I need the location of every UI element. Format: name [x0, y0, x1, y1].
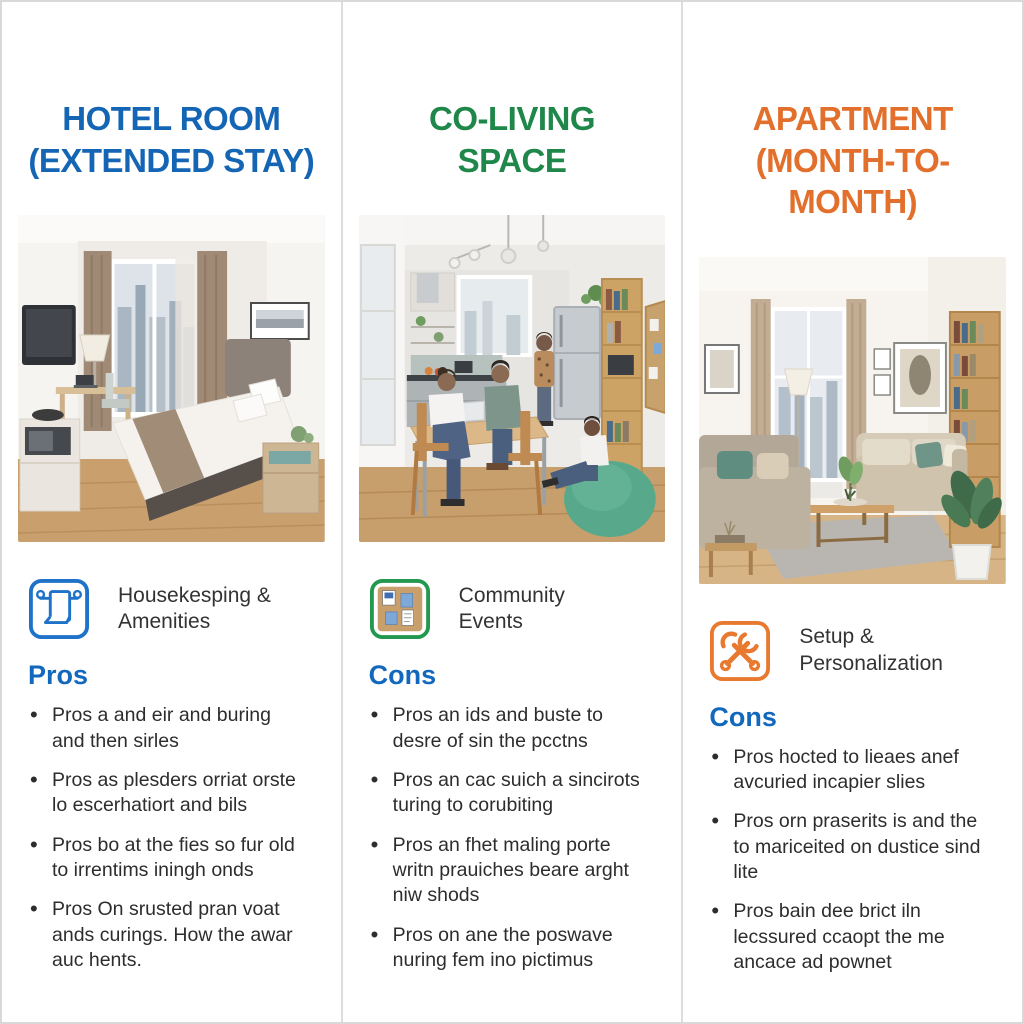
towel-icon	[28, 578, 90, 640]
hotel-room-photo	[18, 215, 325, 542]
column-title-apartment: APARTMENT(MONTH-TO-MONTH)	[691, 98, 1014, 223]
feature-label: Housekesping & Amenities	[118, 583, 323, 636]
title-line2: (MONTH-TO-MONTH)	[756, 142, 950, 221]
housing-comparison-infographic: HOTEL ROOM(EXTENDED STAY)	[0, 0, 1024, 1024]
coliving-space-photo	[359, 215, 666, 542]
column-title-hotel: HOTEL ROOM(EXTENDED STAY)	[10, 98, 333, 181]
column-title-coliving: CO-LIVINGSPACE	[351, 98, 674, 181]
corkboard-icon	[369, 578, 431, 640]
list-heading-coliving: Cons	[369, 660, 682, 691]
column-hotel: HOTEL ROOM(EXTENDED STAY)	[2, 2, 341, 1022]
feature-label: Community Events	[459, 583, 591, 636]
column-apartment: APARTMENT(MONTH-TO-MONTH)	[681, 2, 1022, 1022]
title-line1: APARTMENT	[753, 100, 953, 137]
bullet-item: Pros a and eir and buring and then sirle…	[28, 703, 305, 754]
bullet-item: Pros on ane the poswave nuring fem ino p…	[369, 923, 646, 974]
title-line2: SPACE	[458, 142, 567, 179]
bullet-item: Pros an cac suich a sincirots turing to …	[369, 768, 646, 819]
bullet-list-apartment: Pros hocted to lieaes anef avcuried inca…	[683, 745, 1022, 990]
bullet-list-hotel: Pros a and eir and buring and then sirle…	[2, 703, 341, 987]
list-heading-hotel: Pros	[28, 660, 341, 691]
apartment-photo	[699, 257, 1006, 584]
bullet-item: Pros hocted to lieaes anef avcuried inca…	[709, 745, 986, 796]
bullet-item: Pros bain dee brict iln lecssured ccaopt…	[709, 899, 986, 975]
title-line1: HOTEL ROOM	[62, 100, 280, 137]
bullet-item: Pros an fhet maling porte writn prauiche…	[369, 833, 646, 909]
bullet-list-coliving: Pros an ids and buste to desre of sin th…	[343, 703, 682, 987]
bullet-item: Pros as plesders orriat orste lo escerha…	[28, 768, 305, 819]
bullet-item: Pros orn praserits is and the to maricei…	[709, 809, 986, 885]
bullet-item: Pros an ids and buste to desre of sin th…	[369, 703, 646, 754]
list-heading-apartment: Cons	[709, 702, 1022, 733]
title-line1: CO-LIVING	[429, 100, 595, 137]
title-line2: (EXTENDED STAY)	[28, 142, 314, 179]
feature-row-hotel: Housekesping & Amenities	[28, 578, 323, 640]
tools-icon	[709, 620, 771, 682]
bullet-item: Pros On srusted pran voat ands curings. …	[28, 897, 305, 973]
feature-label: Setup & Personalization	[799, 624, 1004, 677]
feature-row-apartment: Setup & Personalization	[709, 620, 1004, 682]
feature-row-coliving: Community Events	[369, 578, 664, 640]
bullet-item: Pros bo at the fies so fur old to irrent…	[28, 833, 305, 884]
column-coliving: CO-LIVINGSPACE	[341, 2, 682, 1022]
